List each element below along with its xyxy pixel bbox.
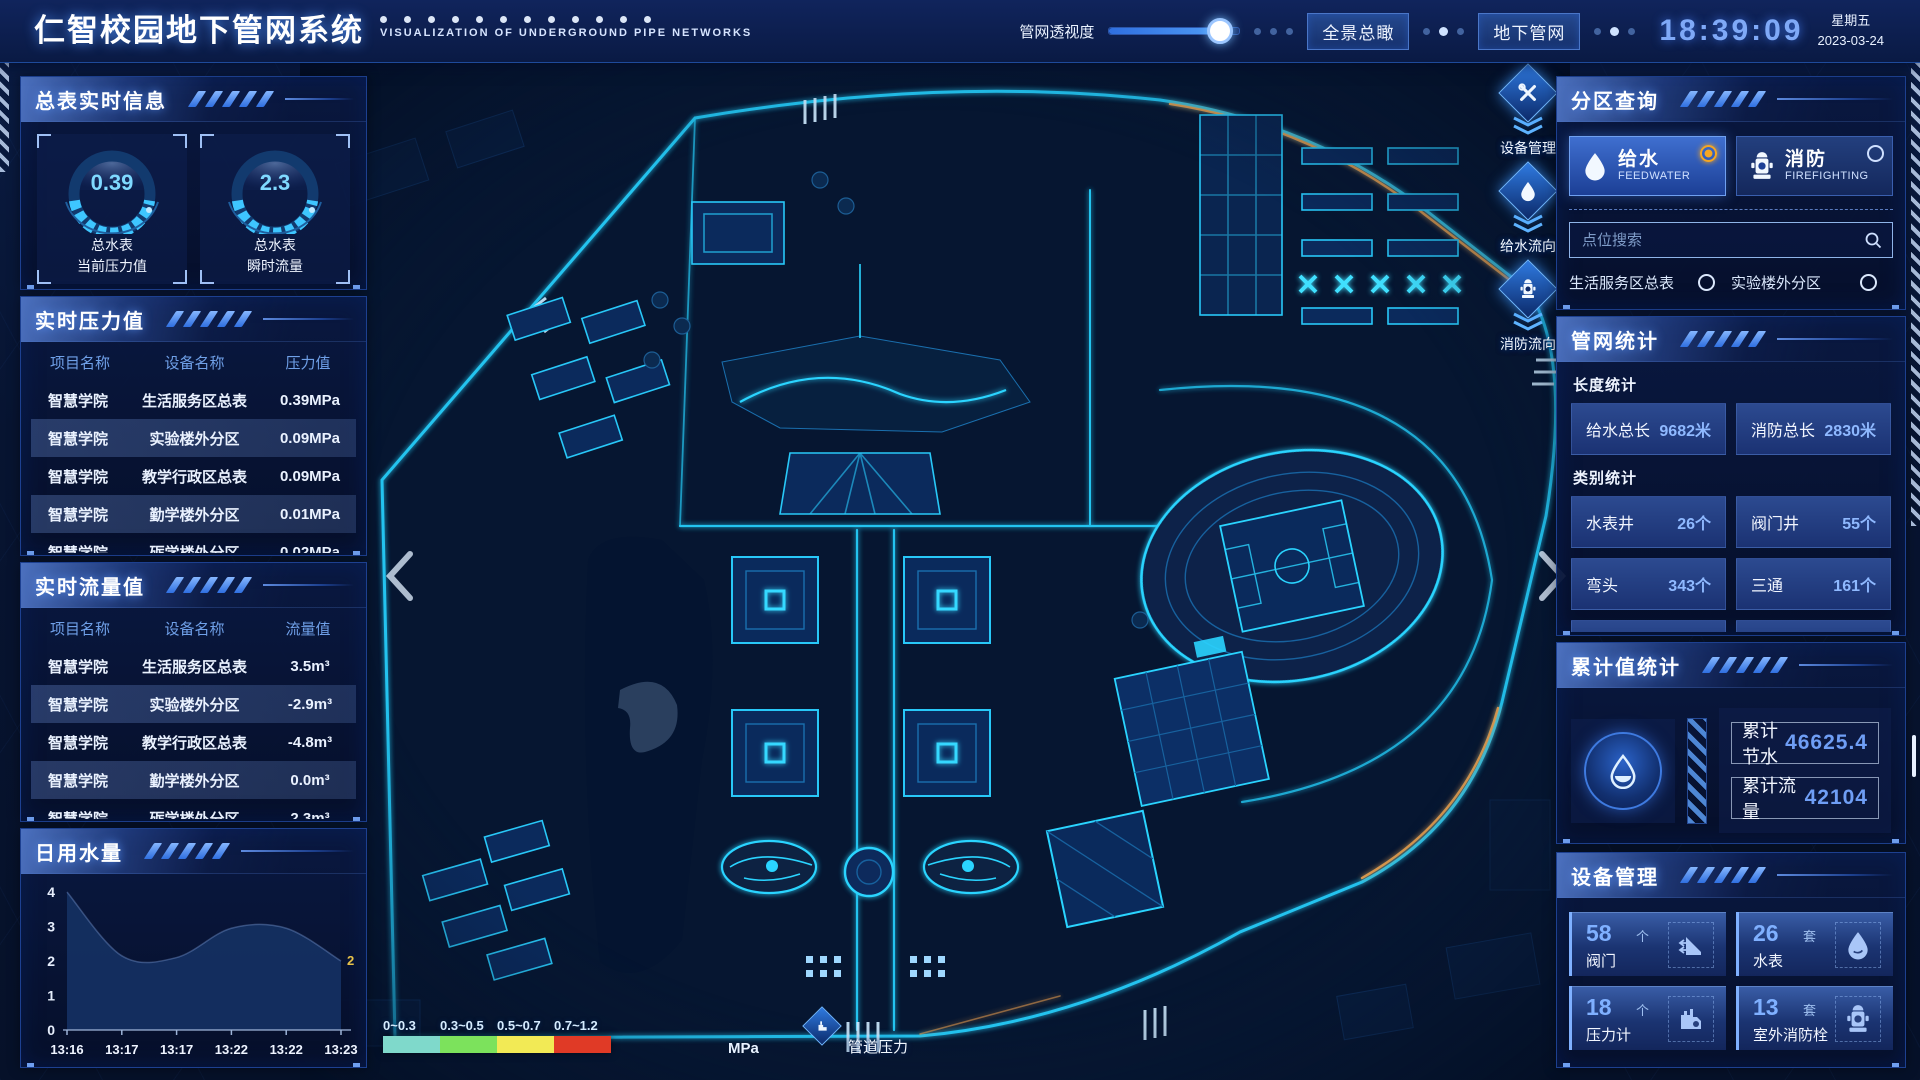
table-row: 智慧学院勤学楼外分区0.01MPa <box>31 495 356 533</box>
svg-text:3: 3 <box>47 919 55 935</box>
table-body: 智慧学院生活服务区总表3.5m³ 智慧学院实验楼外分区-2.9m³ 智慧学院教学… <box>31 647 356 819</box>
campus-map[interactable] <box>300 60 1570 1080</box>
table-header: 项目名称设备名称压力值 <box>31 344 356 381</box>
device-card-valve[interactable]: 58个 阀门 <box>1569 912 1726 976</box>
pressure-table: 项目名称设备名称压力值 智慧学院生活服务区总表0.39MPa 智慧学院实验楼外分… <box>21 342 366 553</box>
stat-box-partial <box>1571 620 1726 632</box>
pipe-opacity-slider[interactable] <box>1108 27 1240 35</box>
date: 2023-03-24 <box>1818 31 1885 51</box>
section-title: 实时流量值 <box>35 571 145 600</box>
section-title: 累计值统计 <box>1571 651 1681 680</box>
category-stats-wrap: 水表井26个 阀门井55个 弯头343个 三通161个 <box>1557 496 1905 632</box>
title-decor: VISUALIZATION OF UNDERGROUND PIPE NETWOR… <box>380 2 752 39</box>
dot-separator <box>1594 27 1635 36</box>
svg-text:0.39: 0.39 <box>91 170 134 195</box>
water-drop-icon <box>1584 732 1662 810</box>
table-row: 智慧学院砺学楼外分区2.3m³ <box>31 799 356 819</box>
legend-color-bar <box>383 1036 611 1053</box>
length-stats-label: 长度统计 <box>1573 374 1905 395</box>
radio-icon[interactable] <box>1698 274 1715 291</box>
panel-realtime-pressure: 实时压力值 项目名称设备名称压力值 智慧学院生活服务区总表0.39MPa 智慧学… <box>20 296 367 556</box>
pressure-gauge-card: 0.39 总水表当前压力值 <box>37 134 187 284</box>
legend-range-labels: 0~0.30.3~0.50.5~0.70.7~1.2 <box>383 1018 611 1033</box>
svg-text:13:22: 13:22 <box>214 1042 247 1057</box>
device-cards: 58个 阀门 26套 水表 18个 压力计 13套 室外消防栓 <box>1557 898 1905 1050</box>
zone-list: 生活服务区总表 实验楼外分区 教学行政区总表 勤学楼外分区 砺学楼外分区 宿舍区… <box>1569 264 1893 310</box>
legend-unit: MPa <box>728 1040 759 1057</box>
dashboard-root: 仁智校园地下管网系统 VISUALIZATION OF UNDERGROUND … <box>0 0 1920 1080</box>
zone-item[interactable]: 实验楼外分区 <box>1731 264 1893 301</box>
cumulative-content: 累计节水46625.4 累计流量42104 <box>1557 688 1905 833</box>
tool-device-management[interactable]: 设备管理 <box>1500 66 1556 158</box>
page-subtitle: VISUALIZATION OF UNDERGROUND PIPE NETWOR… <box>380 27 752 39</box>
slider-knob[interactable] <box>1207 18 1233 44</box>
stat-box: 阀门井55个 <box>1736 496 1891 548</box>
length-stats: 给水总长9682米 消防总长2830米 <box>1557 403 1905 455</box>
table-row: 智慧学院实验楼外分区0.09MPa <box>31 419 356 457</box>
section-title: 总表实时信息 <box>35 85 167 114</box>
section-title: 实时压力值 <box>35 305 145 334</box>
dashed-divider <box>1569 209 1893 210</box>
panel-meter-info: 总表实时信息 0.39 总水表当前压力值 <box>20 76 367 290</box>
cumulative-values: 累计节水46625.4 累计流量42104 <box>1719 708 1891 833</box>
map-prev-arrow[interactable] <box>382 550 416 602</box>
table-body: 智慧学院生活服务区总表0.39MPa 智慧学院实验楼外分区0.09MPa 智慧学… <box>31 381 356 553</box>
hazard-stripe-decoration <box>1687 718 1707 824</box>
slashes-decoration <box>1685 867 1761 883</box>
radio-icon[interactable] <box>1700 145 1717 162</box>
section-title: 设备管理 <box>1571 861 1659 890</box>
device-card-pressure-gauge[interactable]: 18个 压力计 <box>1569 986 1726 1050</box>
tab-firefighting[interactable]: 消防FIREFIGHTING <box>1736 136 1893 196</box>
pressure-legend: 0~0.30.3~0.50.5~0.70.7~1.2 MPa 管道压力 <box>383 1018 611 1053</box>
svg-text:13:17: 13:17 <box>105 1042 138 1057</box>
search-box <box>1569 222 1893 258</box>
gauge-dial-icon: 2.3 <box>210 138 340 234</box>
scrollbar-thumb[interactable] <box>1912 735 1916 777</box>
legend-pressure-label: 管道压力 <box>848 1036 908 1057</box>
svg-text:13:22: 13:22 <box>269 1042 302 1057</box>
table-row: 智慧学院实验楼外分区-2.9m³ <box>31 685 356 723</box>
dot-separator <box>1254 28 1293 35</box>
svg-text:2.3: 2.3 <box>260 170 291 195</box>
category-stats-label: 类别统计 <box>1573 467 1905 488</box>
date-block: 星期五 2023-03-24 <box>1818 11 1885 51</box>
panel-cumulative: 累计值统计 累计节水46625.4 累计流量42104 <box>1556 642 1906 844</box>
table-row: 智慧学院生活服务区总表3.5m³ <box>31 647 356 685</box>
gauge-dial-icon: 0.39 <box>47 138 177 234</box>
panel-pipe-stats: 管网统计 长度统计 给水总长9682米 消防总长2830米 类别统计 水表井26… <box>1556 316 1906 636</box>
cumulative-flow: 累计流量42104 <box>1731 777 1879 819</box>
panel-daily-water: 日用水量 0123413:1613:1713:1713:2213:2213:23… <box>20 828 367 1068</box>
cumulative-saving: 累计节水46625.4 <box>1731 722 1879 764</box>
underground-button[interactable]: 地下管网 <box>1478 13 1580 50</box>
map-vignette <box>300 60 1570 1080</box>
device-card-water-meter[interactable]: 26套 水表 <box>1736 912 1893 976</box>
device-card-outdoor-hydrant[interactable]: 13套 室外消防栓 <box>1736 986 1893 1050</box>
svg-text:1: 1 <box>47 988 55 1004</box>
wrench-icon <box>1498 63 1557 122</box>
slashes-decoration <box>1685 91 1761 107</box>
section-title: 分区查询 <box>1571 85 1659 114</box>
svg-text:0: 0 <box>47 1022 55 1038</box>
flow-table: 项目名称设备名称流量值 智慧学院生活服务区总表3.5m³ 智慧学院实验楼外分区-… <box>21 608 366 819</box>
panel-zone-query: 分区查询 给水FEEDWATER 消防FIREFIGHTING 生活服务区总表 … <box>1556 76 1906 310</box>
overview-button[interactable]: 全景总瞰 <box>1307 13 1409 50</box>
gauge-label: 总水表瞬时流量 <box>200 235 350 276</box>
stat-box: 给水总长9682米 <box>1571 403 1726 455</box>
tab-feedwater[interactable]: 给水FEEDWATER <box>1569 136 1726 196</box>
hydrant-icon <box>1498 259 1557 318</box>
table-row: 智慧学院教学行政区总表0.09MPa <box>31 457 356 495</box>
stat-box-partial <box>1736 620 1891 632</box>
svg-text:13:23: 13:23 <box>324 1042 357 1057</box>
gauge-label: 总水表当前压力值 <box>37 235 187 276</box>
valve-icon <box>1668 922 1714 968</box>
cumulative-icon-card <box>1571 719 1675 823</box>
header-rule <box>285 98 354 100</box>
outdoor-hydrant-icon <box>1835 996 1881 1042</box>
radio-icon[interactable] <box>1860 274 1877 291</box>
tool-fire-flow[interactable]: 消防流向 <box>1500 262 1556 354</box>
slider-fill <box>1109 28 1220 34</box>
zone-type-tabs: 给水FEEDWATER 消防FIREFIGHTING <box>1557 122 1905 196</box>
stat-box: 消防总长2830米 <box>1736 403 1891 455</box>
title-block: 仁智校园地下管网系统 VISUALIZATION OF UNDERGROUND … <box>34 2 752 60</box>
slashes-decoration <box>171 577 247 593</box>
water-meter-icon <box>1835 922 1881 968</box>
header: 仁智校园地下管网系统 VISUALIZATION OF UNDERGROUND … <box>0 0 1920 63</box>
slashes-decoration <box>193 91 269 107</box>
title-dots-decoration <box>380 16 752 23</box>
table-row: 智慧学院生活服务区总表0.39MPa <box>31 381 356 419</box>
search-icon[interactable] <box>1864 231 1882 249</box>
svg-text:2: 2 <box>347 953 354 968</box>
water-drop-icon <box>1582 151 1608 181</box>
clock: 18:39:09 <box>1659 14 1803 48</box>
daily-water-chart: 0123413:1613:1713:1713:2213:2213:232 <box>29 878 359 1064</box>
table-row: 智慧学院勤学楼外分区0.0m³ <box>31 761 356 799</box>
gauge-row: 0.39 总水表当前压力值 2.3 总水表瞬时流量 <box>21 122 366 284</box>
dot-separator <box>1423 27 1464 36</box>
stat-box: 水表井26个 <box>1571 496 1726 548</box>
map-tool-stack: 设备管理 给水流向 消防流向 <box>1492 66 1564 360</box>
stat-box: 弯头343个 <box>1571 558 1726 610</box>
search-input[interactable] <box>1580 231 1864 250</box>
pressure-gauge-icon <box>1668 996 1714 1042</box>
pipe-pressure-toggle[interactable] <box>808 1012 836 1040</box>
slashes-decoration <box>171 311 247 327</box>
table-row: 智慧学院教学行政区总表-4.8m³ <box>31 723 356 761</box>
svg-text:13:17: 13:17 <box>159 1042 192 1057</box>
section-header: 总表实时信息 <box>21 77 366 122</box>
zone-item[interactable]: 勤学楼外分区 <box>1731 301 1893 310</box>
pressure-gauge-icon <box>802 1006 842 1046</box>
page-title: 仁智校园地下管网系统 <box>34 2 364 60</box>
stat-box: 三通161个 <box>1736 558 1891 610</box>
panel-device-management: 设备管理 58个 阀门 26套 水表 18个 压力计 13套 室外消防栓 <box>1556 852 1906 1068</box>
svg-text:2: 2 <box>47 953 55 969</box>
category-stats: 水表井26个 阀门井55个 弯头343个 三通161个 <box>1557 496 1905 632</box>
edge-stripe-decoration <box>1911 56 1920 526</box>
slashes-decoration <box>1685 331 1761 347</box>
header-controls: 管网透视度 全景总瞰 地下管网 18:39:09 星期五 2023-03-24 <box>1019 11 1884 51</box>
flow-gauge-card: 2.3 总水表瞬时流量 <box>200 134 350 284</box>
section-title: 管网统计 <box>1571 325 1659 354</box>
pipe-opacity-label: 管网透视度 <box>1019 21 1094 42</box>
weekday: 星期五 <box>1818 11 1885 31</box>
table-row: 智慧学院砺学楼外分区0.02MPa <box>31 533 356 553</box>
radio-icon[interactable] <box>1867 145 1884 162</box>
zone-item[interactable]: 生活服务区总表 <box>1569 264 1731 301</box>
svg-text:13:16: 13:16 <box>50 1042 83 1057</box>
slashes-decoration <box>1707 657 1783 673</box>
table-header: 项目名称设备名称流量值 <box>31 610 356 647</box>
zone-item[interactable]: 教学行政区总表 <box>1569 301 1731 310</box>
hydrant-icon <box>1749 151 1775 181</box>
panel-realtime-flow: 实时流量值 项目名称设备名称流量值 智慧学院生活服务区总表3.5m³ 智慧学院实… <box>20 562 367 822</box>
tool-feedwater-flow[interactable]: 给水流向 <box>1500 164 1556 256</box>
edge-stripe-decoration <box>0 52 9 172</box>
svg-text:4: 4 <box>47 884 55 900</box>
slashes-decoration <box>149 843 225 859</box>
section-title: 日用水量 <box>35 837 123 866</box>
water-drop-icon <box>1498 161 1557 220</box>
